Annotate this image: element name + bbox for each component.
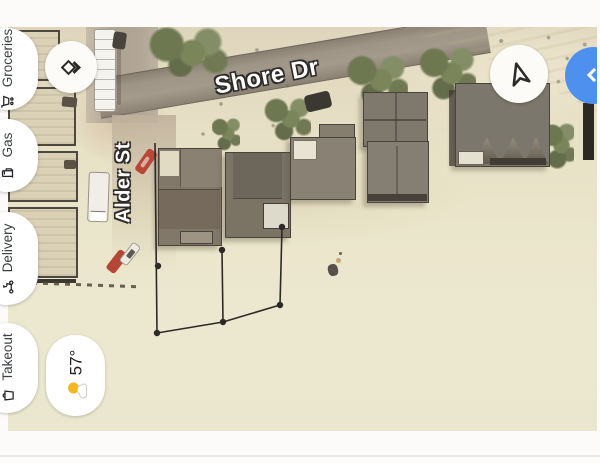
measurement-vertex[interactable] — [155, 263, 161, 269]
gas-pump-icon — [0, 164, 15, 179]
chip-gas[interactable]: Gas — [0, 119, 38, 192]
navigation-arrow-icon — [504, 59, 534, 89]
chip-groceries[interactable]: Groceries — [0, 28, 38, 110]
chevron-left-icon — [587, 68, 597, 82]
printed-screenshot-page: Shore Dr Alder St — [0, 0, 600, 463]
grocery-cart-icon — [0, 94, 15, 109]
chip-label: Gas — [0, 132, 15, 157]
measurement-vertex[interactable] — [277, 302, 283, 308]
chip-label: Groceries — [0, 29, 15, 88]
compass-button[interactable] — [490, 45, 548, 103]
measurement-vertex[interactable] — [220, 319, 226, 325]
temperature-reading: 57° — [66, 349, 86, 375]
chip-takeout[interactable]: Takeout — [0, 323, 38, 413]
delivery-scooter-icon — [0, 279, 15, 294]
takeout-bag-icon — [0, 388, 15, 403]
measurement-vertex[interactable] — [279, 224, 285, 230]
measurement-vertex[interactable] — [219, 247, 225, 253]
chip-label: Delivery — [0, 223, 15, 272]
measurement-vertex[interactable] — [154, 330, 160, 336]
chip-label: Takeout — [0, 333, 15, 380]
partly-sunny-icon — [65, 380, 87, 402]
scan-artifact — [0, 455, 600, 457]
chip-delivery[interactable]: Delivery — [0, 212, 38, 305]
directions-button[interactable] — [45, 41, 97, 93]
weather-widget[interactable]: 57° — [46, 335, 105, 416]
